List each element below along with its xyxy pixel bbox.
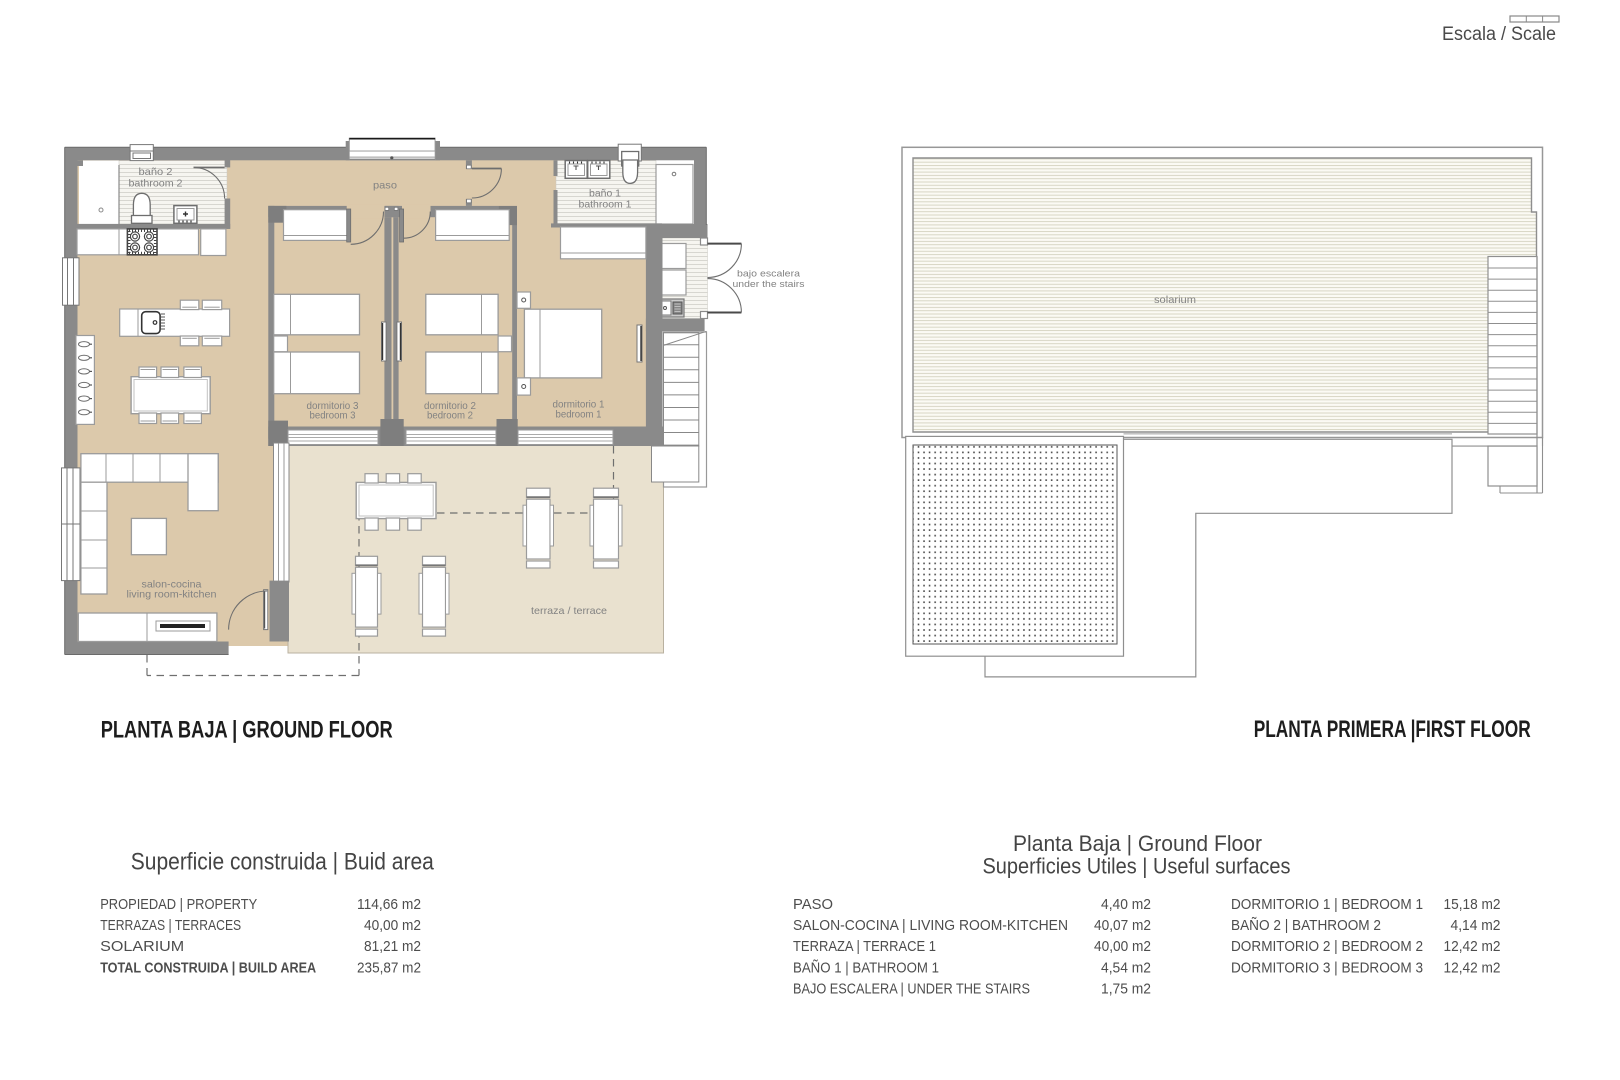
svg-text:bathroom 2: bathroom 2 [129,178,183,190]
svg-text:40,00 m2: 40,00 m2 [1094,938,1151,955]
svg-text:BAJO ESCALERA | UNDER THE STAI: BAJO ESCALERA | UNDER THE STAIRS [793,981,1030,998]
svg-text:1,75 m2: 1,75 m2 [1101,981,1151,998]
svg-text:SOLARIUM: SOLARIUM [100,938,184,955]
svg-text:TOTAL CONSTRUIDA | BUILD AREA: TOTAL CONSTRUIDA | BUILD AREA [100,959,316,976]
svg-text:12,42 m2: 12,42 m2 [1444,938,1501,955]
svg-text:81,21 m2: 81,21 m2 [364,938,421,955]
svg-text:TERRAZA | TERRACE 1: TERRAZA | TERRACE 1 [793,938,936,955]
svg-text:TERRAZAS | TERRACES: TERRAZAS | TERRACES [100,917,241,934]
svg-text:PROPIEDAD | PROPERTY: PROPIEDAD | PROPERTY [100,896,257,913]
svg-text:baño 2: baño 2 [139,166,173,178]
svg-text:PASO: PASO [793,896,833,913]
svg-text:Planta Baja | Ground Floor: Planta Baja | Ground Floor [1013,831,1262,856]
svg-text:BAÑO 1 | BATHROOM 1: BAÑO 1 | BATHROOM 1 [793,959,939,976]
svg-text:40,07 m2: 40,07 m2 [1094,917,1151,934]
svg-text:40,00 m2: 40,00 m2 [364,917,421,934]
svg-text:BAÑO 2 | BATHROOM 2: BAÑO 2 | BATHROOM 2 [1231,917,1381,934]
svg-text:15,18 m2: 15,18 m2 [1444,896,1501,913]
svg-text:235,87 m2: 235,87 m2 [357,959,421,976]
svg-text:bedroom 2: bedroom 2 [427,410,473,422]
svg-text:114,66 m2: 114,66 m2 [357,896,421,913]
svg-text:solarium: solarium [1154,294,1196,306]
svg-text:bedroom 1: bedroom 1 [556,409,602,421]
svg-text:bajo escalera: bajo escalera [737,269,801,280]
svg-text:Superficies Utiles | Useful su: Superficies Utiles | Useful surfaces [983,854,1291,879]
svg-text:DORMITORIO 2 | BEDROOM 2: DORMITORIO 2 | BEDROOM 2 [1231,938,1423,955]
svg-text:terraza / terrace: terraza / terrace [531,605,607,617]
svg-text:bedroom 3: bedroom 3 [310,410,356,422]
svg-text:PLANTA PRIMERA |FIRST FLOOR: PLANTA PRIMERA |FIRST FLOOR [1254,716,1531,743]
svg-text:4,54 m2: 4,54 m2 [1101,959,1151,976]
svg-text:living room-kitchen: living room-kitchen [127,589,217,601]
svg-text:PLANTA BAJA | GROUND FLOOR: PLANTA BAJA | GROUND FLOOR [101,717,393,744]
svg-text:12,42 m2: 12,42 m2 [1444,959,1501,976]
svg-text:4,40 m2: 4,40 m2 [1101,896,1151,913]
svg-text:Superficie construida | Buid a: Superficie construida | Buid area [131,849,435,876]
svg-text:Escala / Scale: Escala / Scale [1442,24,1556,45]
svg-text:under the stairs: under the stairs [733,279,805,290]
svg-text:SALON-COCINA | LIVING ROOM-KIT: SALON-COCINA | LIVING ROOM-KITCHEN [793,917,1068,934]
svg-text:DORMITORIO 1 | BEDROOM 1: DORMITORIO 1 | BEDROOM 1 [1231,896,1423,913]
svg-text:DORMITORIO 3 | BEDROOM 3: DORMITORIO 3 | BEDROOM 3 [1231,959,1423,976]
svg-text:bathroom 1: bathroom 1 [579,199,632,211]
svg-text:4,14 m2: 4,14 m2 [1451,917,1501,934]
svg-text:paso: paso [373,180,397,192]
